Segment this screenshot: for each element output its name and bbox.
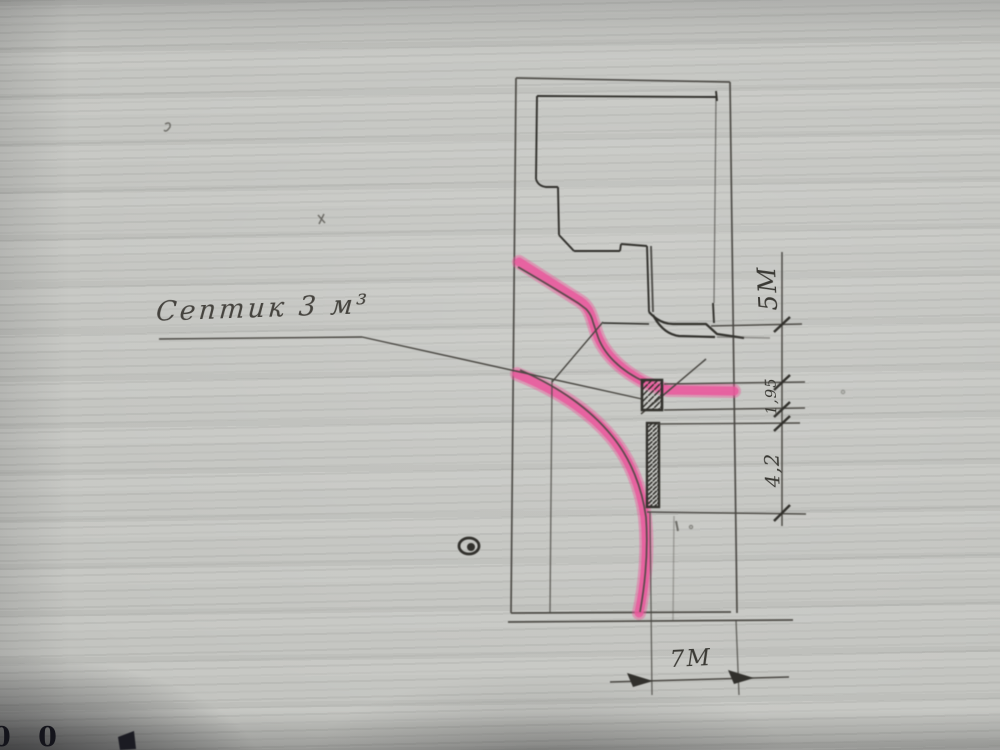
lower-curve: [517, 374, 646, 613]
corner-ink-mark: [118, 731, 136, 750]
sketch-photo: Септик 3 м³ 5М 1,95 4,2 7М 0 0: [0, 0, 1000, 750]
well-symbol: [459, 538, 479, 554]
sketch-drawing: [0, 0, 1000, 750]
pencil-over-pink: [518, 267, 647, 612]
corner-partial-text: 0 0: [0, 722, 66, 750]
stray-marks: [164, 123, 845, 531]
dimension-label-7m: 7М: [663, 643, 718, 676]
dimension-label-1-95: 1,95: [751, 374, 792, 419]
dimension-label-4-2: 4,2: [747, 445, 797, 495]
dimension-label-5m: 5М: [741, 259, 796, 318]
sewer-pipe-lines: [603, 312, 744, 338]
trench-symbol: [647, 423, 659, 507]
septic-tank-symbol: [642, 380, 662, 410]
pink-highlight-curves: [517, 262, 734, 613]
